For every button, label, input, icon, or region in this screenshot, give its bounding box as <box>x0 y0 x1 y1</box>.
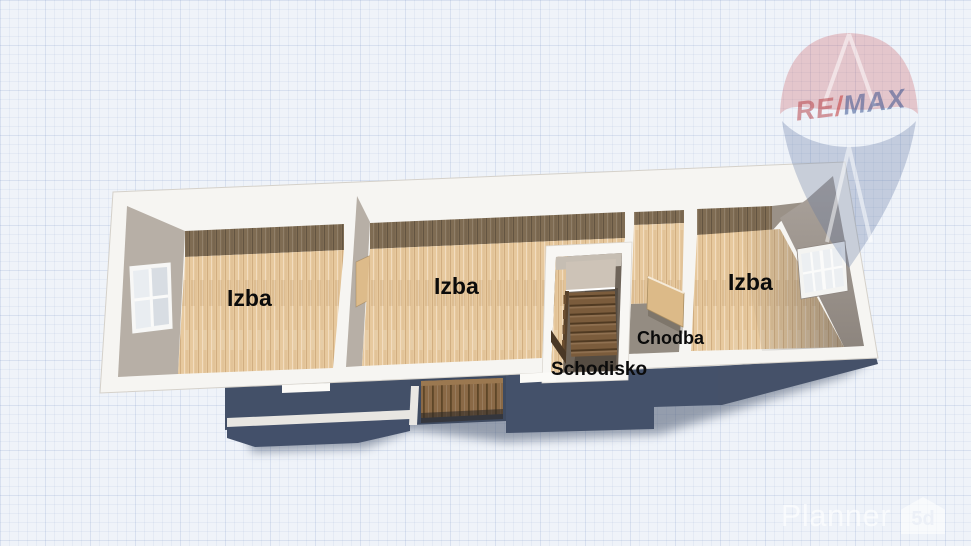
window-left-room[interactable] <box>129 262 173 334</box>
planner-watermark-badge: 5d <box>901 497 945 534</box>
staircase-landing[interactable] <box>566 259 616 291</box>
railing-post <box>563 310 566 319</box>
planner-watermark-text: Planner <box>781 498 891 534</box>
room-label-right: Izba <box>728 271 773 294</box>
room-label-middle: Izba <box>434 275 479 298</box>
room-label-staircase: Schodisko <box>551 360 647 379</box>
staircase-treads[interactable] <box>569 291 617 357</box>
planner5d-watermark: Planner 5d <box>781 497 945 534</box>
planner-badge-label: 5d <box>911 508 934 531</box>
railing-post <box>564 295 567 304</box>
hallway-floor-shadow-band <box>634 210 684 225</box>
room-label-hallway: Chodba <box>637 329 704 347</box>
scene-background[interactable]: RE/MAX Izba Izba Izba Chodba Schodisko P… <box>0 0 971 546</box>
room-label-left: Izba <box>227 287 272 310</box>
floorplan-canvas[interactable]: RE/MAX <box>0 0 971 546</box>
room-left-floor[interactable] <box>178 250 344 374</box>
railing-post <box>563 325 566 334</box>
